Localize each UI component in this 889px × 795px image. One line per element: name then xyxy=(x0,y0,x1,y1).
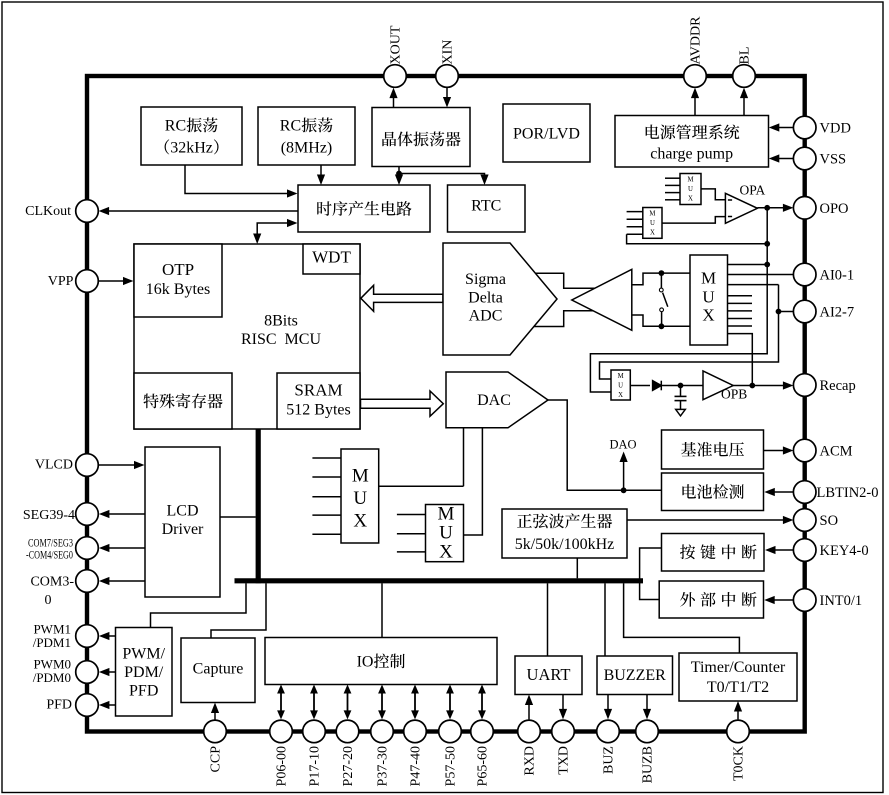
svg-text:8Bits: 8Bits xyxy=(264,313,298,330)
svg-text:M: M xyxy=(701,269,716,288)
svg-text:P06-00: P06-00 xyxy=(275,746,290,786)
svg-text:32kHz: 32kHz xyxy=(170,140,213,157)
svg-text:Delta: Delta xyxy=(468,289,503,306)
svg-text:P65-60: P65-60 xyxy=(476,746,491,786)
svg-text:OPA: OPA xyxy=(740,182,766,197)
svg-text:PFD: PFD xyxy=(46,698,72,713)
svg-text:X: X xyxy=(439,542,453,563)
svg-text:DAO: DAO xyxy=(609,437,636,451)
svg-text:P27-20: P27-20 xyxy=(341,746,356,786)
svg-text:AVDDR: AVDDR xyxy=(689,16,704,65)
svg-text:-COM4/SEG0: -COM4/SEG0 xyxy=(26,548,73,562)
svg-text:SEG39-4: SEG39-4 xyxy=(23,508,75,523)
svg-text:P57-50: P57-50 xyxy=(444,746,459,786)
svg-text:U: U xyxy=(650,220,655,227)
svg-text:BL: BL xyxy=(738,47,753,65)
svg-text:T0CK: T0CK xyxy=(732,746,747,781)
svg-text:UART: UART xyxy=(527,665,571,684)
svg-text:ACM: ACM xyxy=(820,444,853,460)
svg-text:RISC MCU: RISC MCU xyxy=(241,331,321,348)
svg-text:M: M xyxy=(438,504,455,525)
svg-text:X: X xyxy=(688,196,693,203)
svg-text:P17-10: P17-10 xyxy=(308,746,323,786)
svg-text:PDM/: PDM/ xyxy=(124,664,164,681)
svg-text:P47-40: P47-40 xyxy=(409,746,424,786)
svg-text:U: U xyxy=(353,488,367,509)
svg-text:Capture: Capture xyxy=(193,660,244,677)
svg-text:WDT: WDT xyxy=(312,248,351,267)
svg-text:AI2-7: AI2-7 xyxy=(820,305,855,321)
svg-text:OTP: OTP xyxy=(162,260,194,279)
svg-text:VDD: VDD xyxy=(820,121,851,137)
svg-text:CCP: CCP xyxy=(209,746,224,773)
svg-text:BUZZER: BUZZER xyxy=(604,667,667,684)
svg-text:U: U xyxy=(702,287,714,306)
svg-text:POR/LVD: POR/LVD xyxy=(513,126,580,143)
svg-text:VPP: VPP xyxy=(48,274,74,289)
svg-text:RC: RC xyxy=(165,118,186,135)
svg-text:ADC: ADC xyxy=(469,308,503,325)
svg-text:PWM/: PWM/ xyxy=(122,646,165,663)
svg-text:TXD: TXD xyxy=(557,746,572,775)
svg-text:U: U xyxy=(618,383,623,390)
svg-text:RXD: RXD xyxy=(523,746,538,776)
svg-text:PFD: PFD xyxy=(129,683,158,700)
svg-text:CLKout: CLKout xyxy=(25,204,71,219)
svg-text:VLCD: VLCD xyxy=(35,458,73,473)
svg-text:XIN: XIN xyxy=(441,40,456,65)
svg-text:T0/T1/T2: T0/T1/T2 xyxy=(707,679,769,696)
svg-text:M: M xyxy=(618,373,624,380)
svg-text:M: M xyxy=(352,465,369,486)
svg-text:X: X xyxy=(702,305,714,324)
svg-text:SO: SO xyxy=(820,513,839,529)
svg-text:U: U xyxy=(688,186,693,193)
svg-text:COM3-: COM3- xyxy=(30,575,74,590)
svg-text:KEY4-0: KEY4-0 xyxy=(820,543,869,559)
svg-text:LBTIN2-0: LBTIN2-0 xyxy=(817,485,879,501)
svg-text:16k Bytes: 16k Bytes xyxy=(146,281,210,298)
svg-text:X: X xyxy=(353,510,367,531)
svg-text:OPB: OPB xyxy=(721,387,747,402)
svg-text:M: M xyxy=(649,211,655,218)
svg-text:X: X xyxy=(650,230,655,237)
svg-text:M: M xyxy=(687,177,693,184)
svg-text:P37-30: P37-30 xyxy=(376,746,391,786)
svg-text:Driver: Driver xyxy=(162,521,204,538)
svg-text:LCD: LCD xyxy=(167,503,199,520)
svg-text:BUZ: BUZ xyxy=(602,746,617,774)
svg-text:512 Bytes: 512 Bytes xyxy=(286,402,350,419)
svg-text:Timer/Counter: Timer/Counter xyxy=(691,659,786,676)
svg-text:IO: IO xyxy=(357,654,374,671)
svg-text:/PDM0: /PDM0 xyxy=(33,670,71,685)
svg-text:VSS: VSS xyxy=(820,152,847,168)
svg-text:RC: RC xyxy=(280,118,301,135)
svg-text:AI0-1: AI0-1 xyxy=(820,268,855,284)
svg-text:SRAM: SRAM xyxy=(294,381,342,400)
svg-text:(8MHz): (8MHz) xyxy=(281,140,333,157)
svg-text:INT0/1: INT0/1 xyxy=(820,593,863,609)
svg-text:XOUT: XOUT xyxy=(389,25,404,64)
svg-text:5k/50k/100kHz: 5k/50k/100kHz xyxy=(515,536,615,553)
svg-text:DAC: DAC xyxy=(477,392,511,409)
svg-text:0: 0 xyxy=(45,593,52,608)
svg-text:/PDM1: /PDM1 xyxy=(33,635,71,650)
svg-text:OPO: OPO xyxy=(820,201,849,217)
svg-text:RTC: RTC xyxy=(471,198,501,215)
svg-text:U: U xyxy=(439,523,453,544)
svg-text:Sigma: Sigma xyxy=(465,271,506,288)
svg-text:BUZB: BUZB xyxy=(641,746,656,783)
svg-text:Recap: Recap xyxy=(820,378,856,394)
svg-text:X: X xyxy=(618,392,623,399)
svg-text:charge pump: charge pump xyxy=(650,146,733,163)
